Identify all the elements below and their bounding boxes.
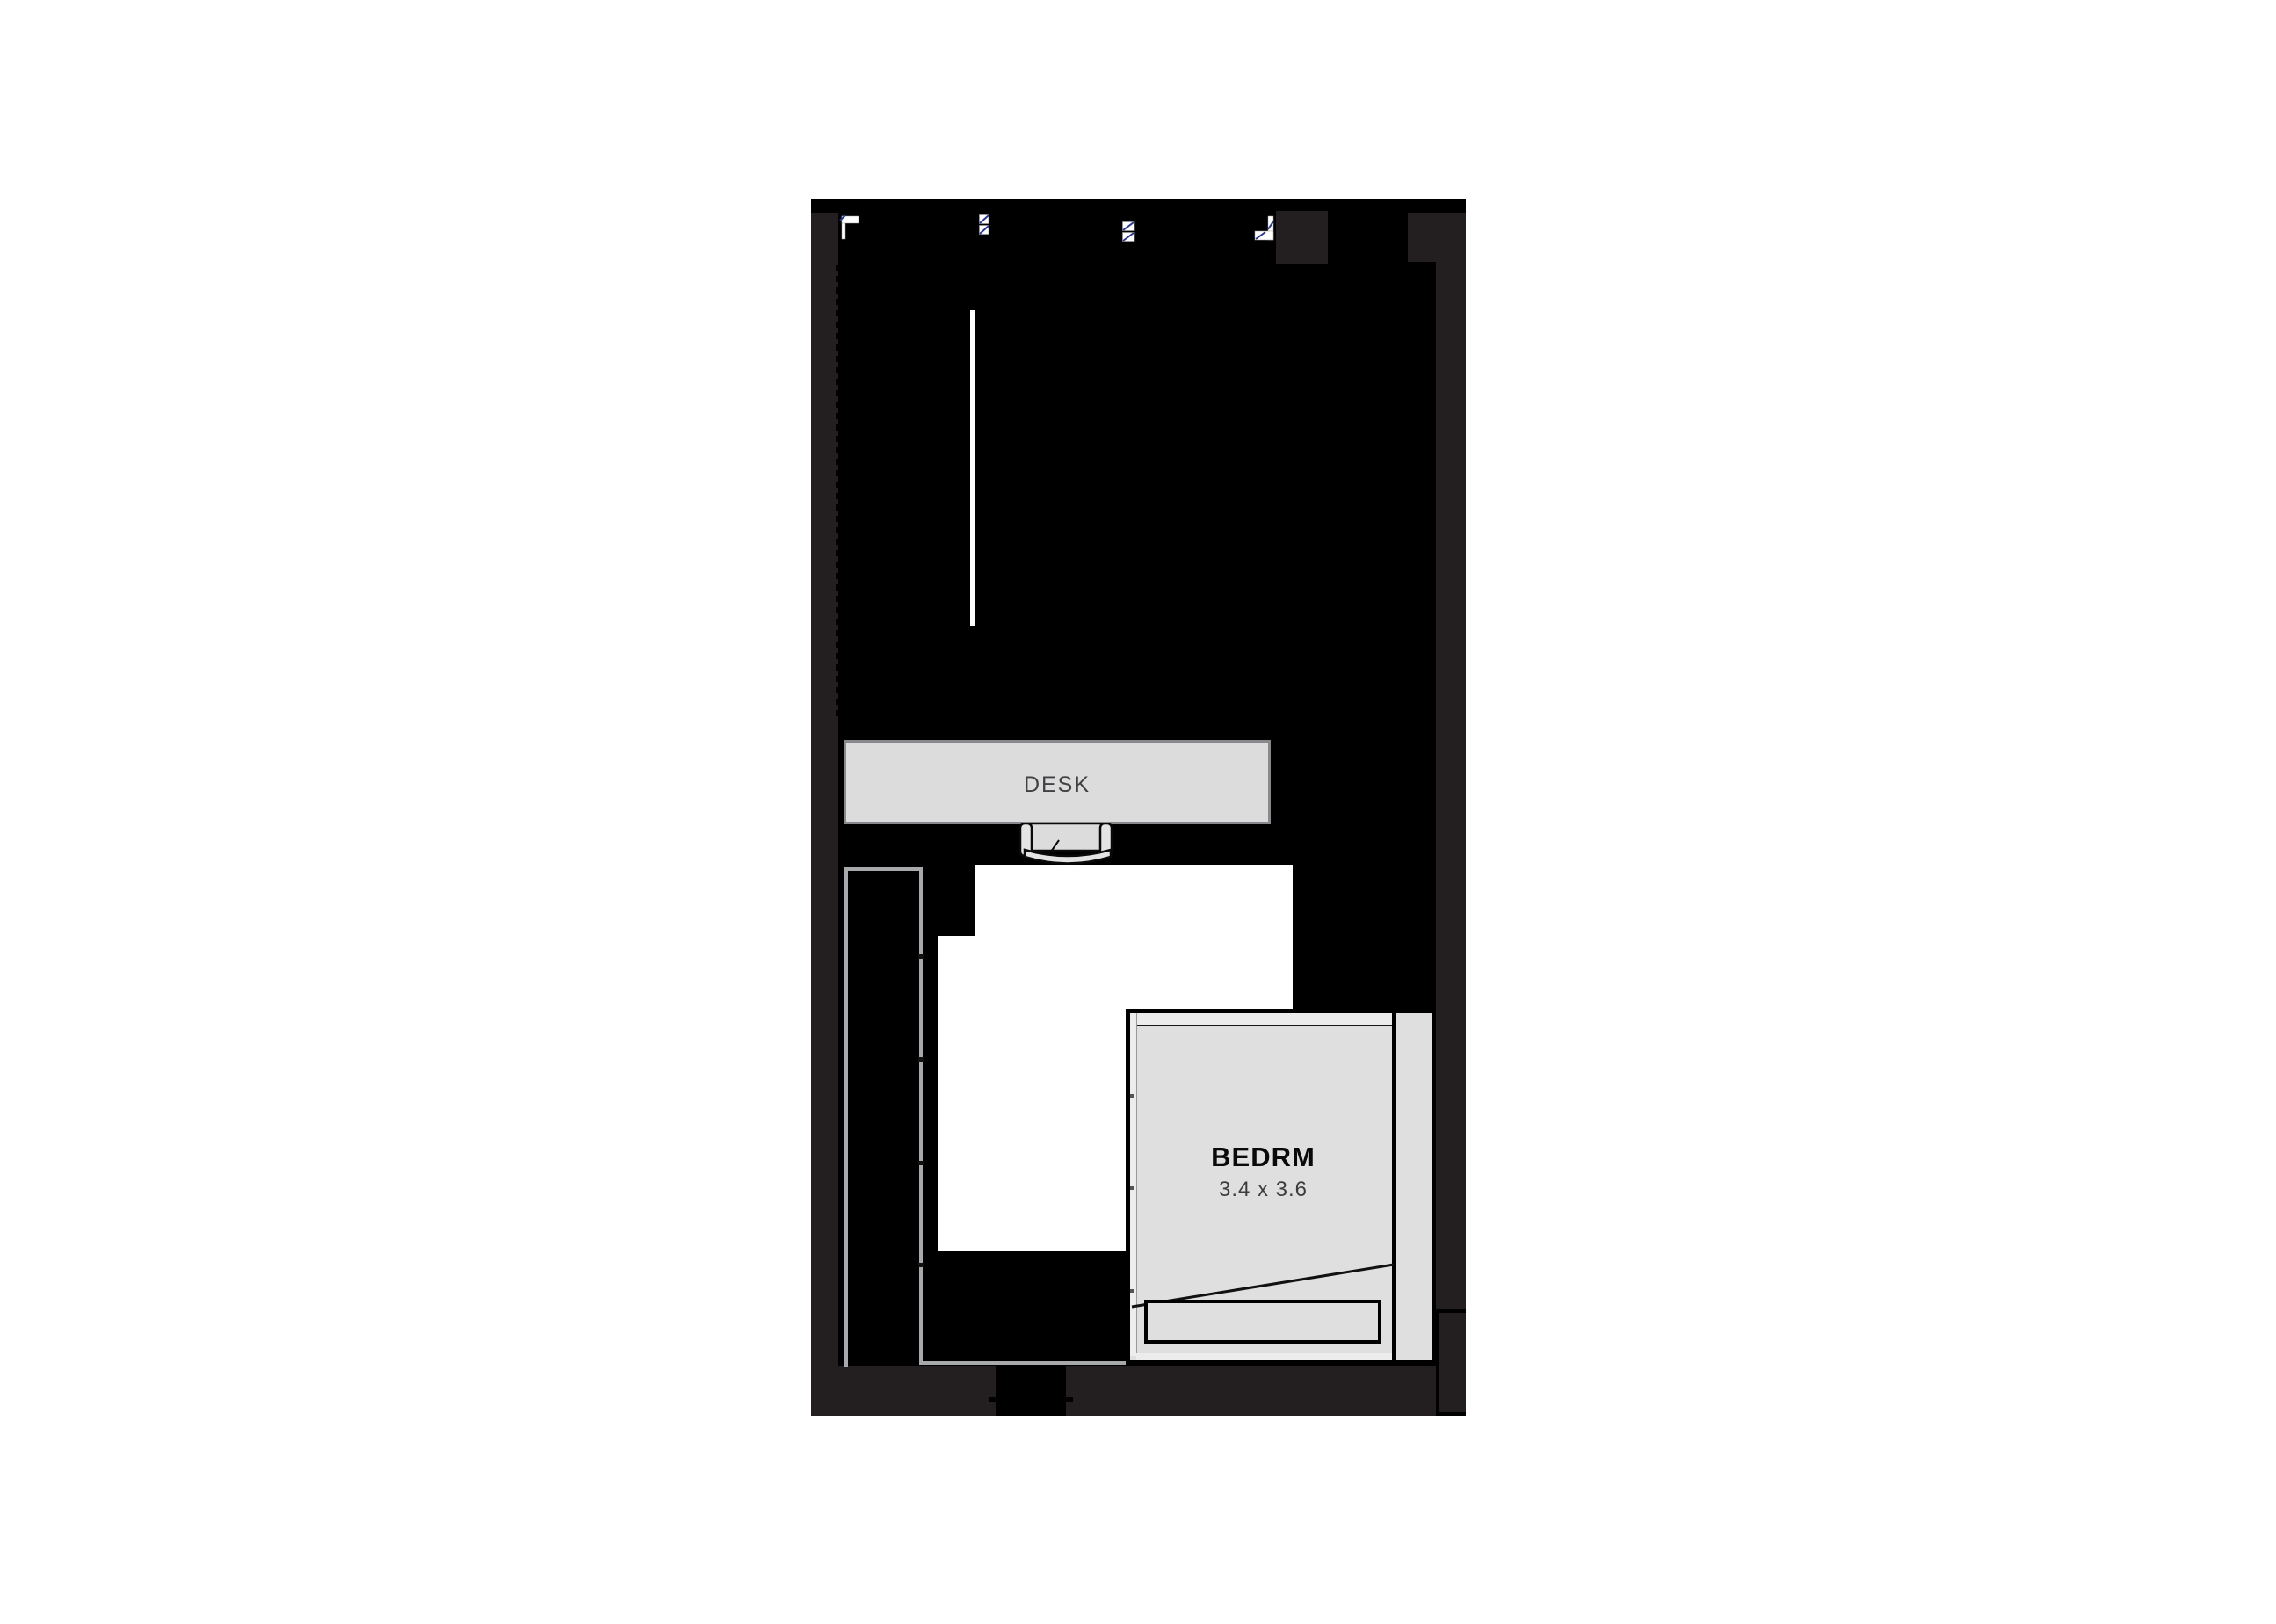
doorway-jamb-tick-right (1066, 1397, 1073, 1402)
left-wall (811, 213, 838, 1416)
stair-outline-left (844, 867, 848, 1367)
window-hatch-marker-icon (979, 214, 989, 236)
doorway-jamb-tick-left (989, 1397, 996, 1402)
top-wall-band (811, 199, 1466, 213)
right-wall-upper (1436, 213, 1466, 1309)
bedroom-name-label: BEDRM (1130, 1142, 1396, 1173)
left-wall-dashed-line (836, 265, 839, 716)
bottom-wall-band (811, 1366, 1436, 1416)
doorway-gap (996, 1365, 1066, 1416)
stair-line-tick (918, 1057, 924, 1062)
bedroom: BEDRM 3.4 x 3.6 (1126, 1009, 1436, 1365)
stair-line-tick (918, 1161, 924, 1165)
stair-line-tick (918, 1263, 924, 1267)
stair-line-tick (918, 954, 924, 959)
bedroom-dims-label: 3.4 x 3.6 (1130, 1178, 1396, 1202)
stair-outline-top (844, 867, 922, 871)
window-start-marker-icon (839, 214, 862, 242)
stair-outline-right (919, 867, 923, 1365)
bedroom-head-band (1130, 1013, 1392, 1026)
bedroom-sliver-tick (1130, 1094, 1134, 1098)
floorplan-page: { "floorplan": { "labels": { "desk": "DE… (0, 0, 2276, 1624)
top-wall-block-left (1276, 211, 1328, 264)
bedroom-foot-band (1136, 1353, 1392, 1360)
desk: DESK (844, 740, 1271, 824)
window-end-marker-icon (1254, 215, 1275, 242)
stair-outline-bottom (919, 1361, 1126, 1365)
bed (1144, 1300, 1381, 1344)
top-wall-block-right (1408, 213, 1436, 262)
office-chair-icon (1016, 823, 1120, 872)
window-hatch-marker-icon (1122, 221, 1135, 243)
bedroom-labels: BEDRM 3.4 x 3.6 (1130, 1142, 1396, 1202)
partition-white-line (970, 310, 975, 626)
right-wall-lower (1436, 1309, 1466, 1416)
desk-label: DESK (1024, 767, 1091, 798)
